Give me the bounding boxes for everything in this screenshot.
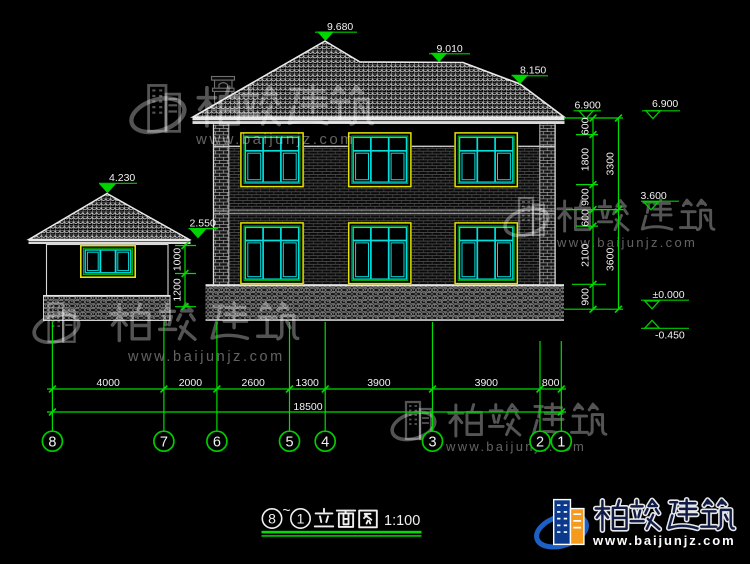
svg-text:www.baijunjz.com: www.baijunjz.com [592,533,736,548]
svg-text:1: 1 [557,434,565,450]
svg-text:8: 8 [48,434,56,450]
svg-text:900: 900 [580,188,592,206]
svg-text:www.baijunjz.com: www.baijunjz.com [195,131,355,148]
svg-text:3600: 3600 [605,248,617,272]
svg-text:4000: 4000 [97,377,121,389]
svg-text:3.600: 3.600 [641,190,667,202]
svg-text:7: 7 [160,434,168,450]
svg-text:3300: 3300 [605,152,617,176]
svg-text:4: 4 [321,434,329,450]
svg-text:8: 8 [268,510,276,526]
svg-text:9.010: 9.010 [437,43,463,55]
svg-text:800: 800 [542,377,560,389]
svg-text:www.baijunjz.com: www.baijunjz.com [127,349,285,365]
svg-text:2: 2 [536,434,544,450]
svg-text:5: 5 [285,434,293,450]
svg-text:1: 1 [297,510,305,526]
svg-text:18500: 18500 [293,401,322,413]
svg-text:2600: 2600 [242,377,266,389]
svg-text:~: ~ [282,502,290,518]
svg-text:1200: 1200 [172,278,184,302]
svg-text:±0.000: ±0.000 [653,289,685,301]
svg-text:www.baijunjz.com: www.baijunjz.com [556,235,697,250]
svg-text:1000: 1000 [172,248,184,272]
svg-text:6.900: 6.900 [575,100,601,112]
svg-text:900: 900 [580,288,592,306]
svg-text:2.550: 2.550 [190,217,216,229]
svg-text:1800: 1800 [580,148,592,172]
svg-text:4.230: 4.230 [109,172,135,184]
svg-text:600: 600 [580,209,592,227]
svg-text:6: 6 [213,434,221,450]
svg-text:8.150: 8.150 [520,65,546,77]
svg-text:3: 3 [428,434,436,450]
svg-text:9.680: 9.680 [327,21,353,33]
svg-text:3900: 3900 [475,377,499,389]
svg-text:2100: 2100 [580,243,592,267]
svg-text:2000: 2000 [179,377,203,389]
svg-text:6.900: 6.900 [652,98,678,110]
svg-text:3900: 3900 [367,377,391,389]
svg-text:1300: 1300 [296,377,320,389]
svg-text:1:100: 1:100 [384,513,420,529]
svg-text:-0.450: -0.450 [655,330,685,342]
svg-text:600: 600 [580,117,592,135]
